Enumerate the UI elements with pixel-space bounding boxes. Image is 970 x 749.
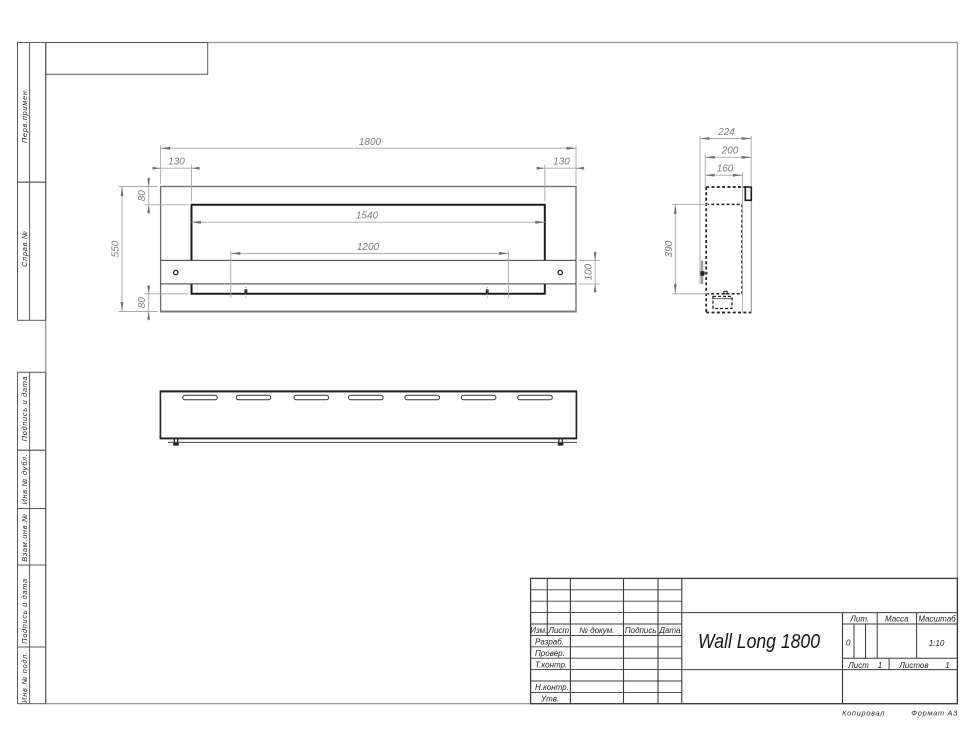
svg-text:Wall Long 1800: Wall Long 1800 [698, 630, 821, 653]
svg-text:№ докум.: № докум. [579, 626, 614, 635]
svg-text:224: 224 [717, 127, 735, 138]
svg-text:1: 1 [878, 661, 882, 670]
svg-text:Справ.№: Справ.№ [20, 230, 29, 266]
svg-text:Изм.: Изм. [530, 626, 547, 635]
svg-text:Листов: Листов [898, 661, 928, 670]
svg-text:0: 0 [846, 639, 851, 648]
svg-text:Перв.примен.: Перв.примен. [20, 88, 29, 143]
svg-text:200: 200 [721, 146, 739, 157]
svg-text:Лист: Лист [547, 626, 569, 635]
svg-text:130: 130 [553, 156, 570, 167]
svg-text:Инв.№ подл.: Инв.№ подл. [20, 651, 29, 703]
svg-text:Взам.инв.№: Взам.инв.№ [20, 513, 29, 562]
svg-text:Масса: Масса [885, 615, 909, 624]
svg-text:Формат А3: Формат А3 [911, 709, 958, 718]
svg-text:Разраб.: Разраб. [535, 638, 564, 647]
svg-text:80: 80 [137, 190, 148, 202]
svg-text:Подпись и дата: Подпись и дата [20, 376, 29, 442]
svg-text:160: 160 [717, 163, 734, 174]
svg-text:Т.контр.: Т.контр. [535, 660, 567, 669]
svg-text:Копировал: Копировал [842, 709, 885, 718]
svg-text:130: 130 [168, 156, 185, 167]
svg-text:1: 1 [945, 661, 949, 670]
svg-text:Дата: Дата [658, 626, 681, 635]
svg-text:550: 550 [111, 240, 122, 257]
svg-text:390: 390 [664, 240, 675, 257]
svg-text:Инв.№ дубл.: Инв.№ дубл. [20, 453, 29, 504]
svg-text:Лист: Лист [847, 661, 869, 670]
svg-text:1:10: 1:10 [929, 639, 945, 648]
svg-text:Н.контр.: Н.контр. [535, 683, 569, 692]
svg-text:1200: 1200 [357, 242, 380, 253]
svg-text:1540: 1540 [356, 211, 379, 222]
svg-text:1800: 1800 [359, 137, 382, 148]
svg-text:Масштаб: Масштаб [918, 615, 956, 624]
svg-text:80: 80 [137, 297, 148, 309]
svg-text:Утв.: Утв. [540, 695, 559, 704]
svg-text:Подпись и дата: Подпись и дата [20, 578, 29, 644]
svg-text:100: 100 [584, 263, 595, 280]
svg-text:Провер.: Провер. [535, 649, 565, 658]
svg-text:Подпись: Подпись [625, 626, 657, 635]
svg-text:Лит.: Лит. [849, 615, 869, 624]
